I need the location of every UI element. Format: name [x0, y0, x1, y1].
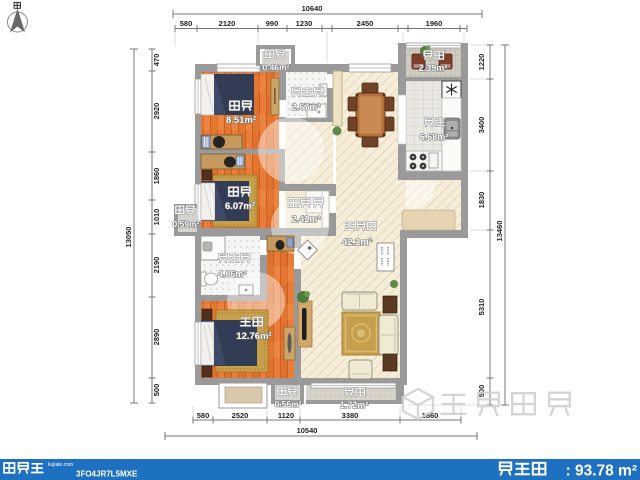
- svg-text:2.39m²: 2.39m²: [419, 63, 448, 73]
- svg-text:2450: 2450: [357, 19, 374, 28]
- svg-text:1830: 1830: [477, 192, 486, 209]
- svg-text:kujiale.com: kujiale.com: [48, 462, 73, 468]
- svg-text:580: 580: [180, 19, 193, 28]
- svg-text:12.76m²: 12.76m²: [236, 331, 271, 342]
- svg-text:0.59m²: 0.59m²: [173, 219, 200, 229]
- svg-text:1.72m²: 1.72m²: [340, 400, 369, 410]
- svg-text:4.86m²: 4.86m²: [218, 269, 247, 279]
- svg-text:8.51m²: 8.51m²: [226, 115, 256, 126]
- svg-text:1220: 1220: [477, 54, 486, 71]
- svg-text:2.67m²: 2.67m²: [292, 102, 321, 112]
- svg-text:3400: 3400: [477, 117, 486, 134]
- svg-text:2520: 2520: [232, 411, 249, 420]
- svg-text:10640: 10640: [302, 4, 323, 13]
- svg-text:1120: 1120: [278, 411, 294, 420]
- svg-text:580: 580: [197, 411, 210, 420]
- svg-text:470: 470: [152, 54, 161, 67]
- svg-text:1230: 1230: [296, 19, 313, 28]
- svg-text:13050: 13050: [124, 227, 133, 248]
- svg-text:2890: 2890: [152, 329, 161, 346]
- svg-text:0.56m²: 0.56m²: [275, 399, 302, 409]
- svg-text:2190: 2190: [152, 257, 161, 274]
- svg-text:10540: 10540: [297, 426, 318, 435]
- svg-text:42.1m²: 42.1m²: [342, 237, 372, 248]
- svg-text:990: 990: [266, 19, 279, 28]
- svg-text:6.68m²: 6.68m²: [420, 132, 449, 142]
- svg-text:2120: 2120: [219, 19, 236, 28]
- svg-text:2.41m²: 2.41m²: [292, 214, 321, 224]
- svg-text:5310: 5310: [477, 299, 486, 316]
- svg-text:13460: 13460: [495, 221, 504, 242]
- svg-text:3380: 3380: [342, 411, 359, 420]
- svg-text:500: 500: [152, 384, 161, 397]
- svg-text:2920: 2920: [152, 103, 161, 120]
- svg-text:1010: 1010: [152, 209, 161, 226]
- svg-text:0.46m²: 0.46m²: [263, 63, 290, 73]
- svg-text:3FO4JR7L5MXE: 3FO4JR7L5MXE: [76, 470, 138, 479]
- svg-text:: 93.78 m²: : 93.78 m²: [565, 463, 637, 480]
- svg-text:1860: 1860: [152, 168, 161, 185]
- svg-text:1960: 1960: [426, 19, 443, 28]
- svg-text:6.07m²: 6.07m²: [225, 201, 255, 212]
